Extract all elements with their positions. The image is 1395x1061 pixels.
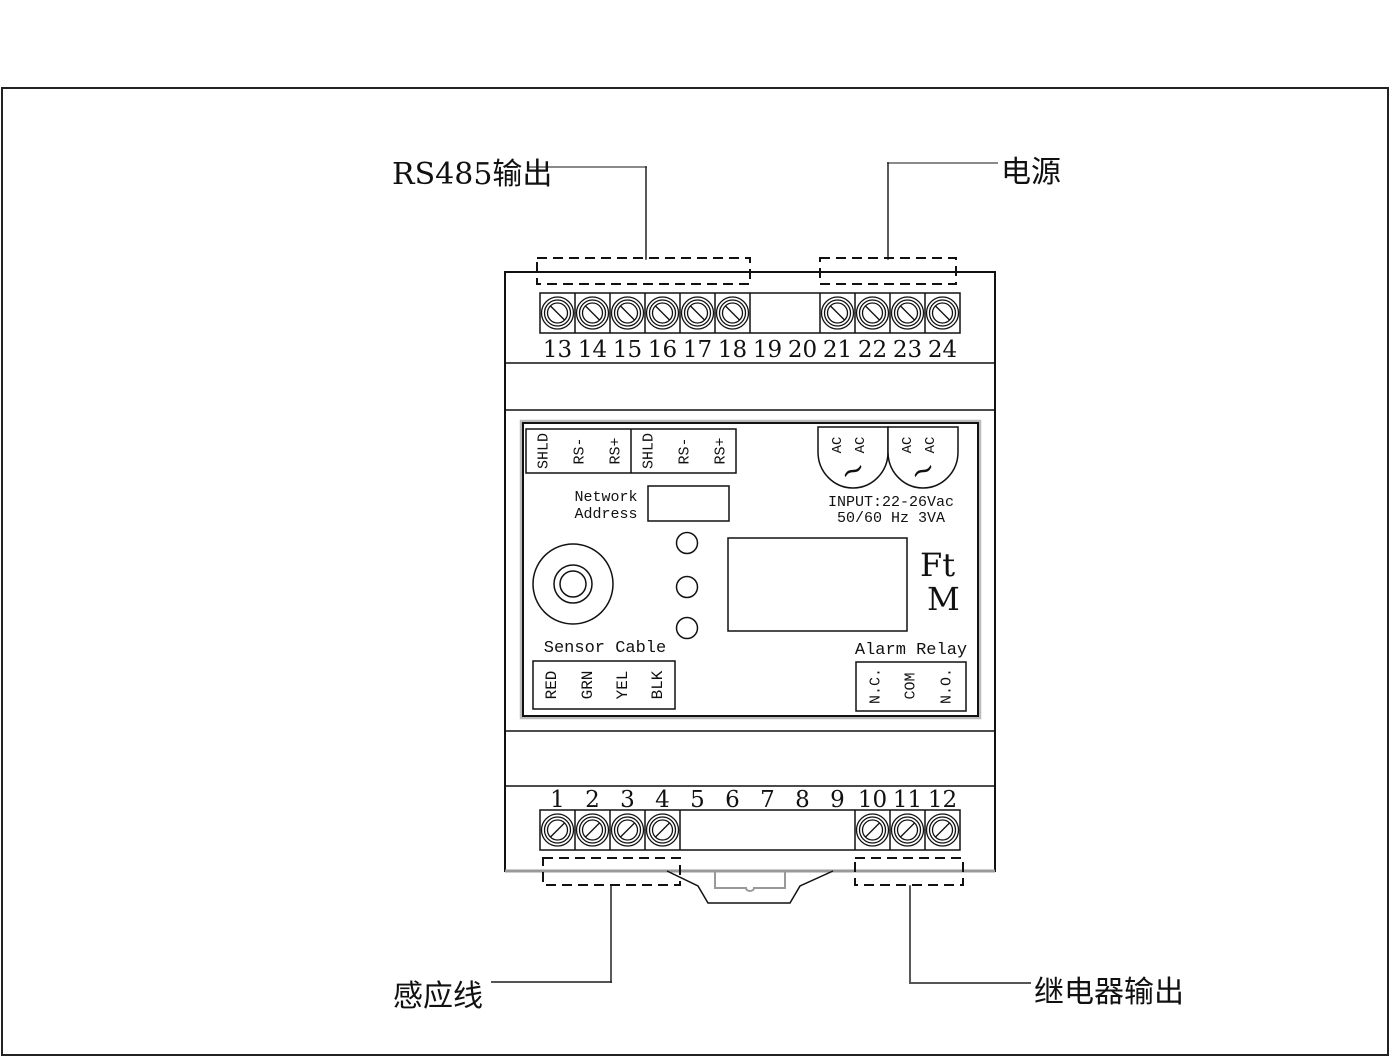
ac-pin-label: AC [900,437,916,454]
terminal-number: 9 [820,787,855,813]
terminal-number: 1 [540,787,575,813]
terminal-number: 8 [785,787,820,813]
din-rail-clip [667,871,833,903]
power-rating-line2: 50/60 Hz 3VA [800,510,982,527]
sensor-cable-title: Sensor Cable [530,639,680,658]
terminal-number: 4 [645,787,680,813]
alarm-relay-title: Alarm Relay [854,641,968,660]
rs485-pin-label: RS+ [608,437,625,464]
terminal-number: 3 [610,787,645,813]
terminal-number: 16 [645,337,680,363]
terminal-number: 14 [575,337,610,363]
sensor-pin-label: BLK [649,671,667,700]
terminal-number: 22 [855,337,890,363]
terminal-number: 12 [925,787,960,813]
wiring-diagram: RS485输出 电源 感应线 继电器输出 13 14 15 16 17 18 1… [0,0,1395,1061]
network-address-caption-line1: Network [556,489,656,506]
rs485-pin-label: RS- [572,437,589,464]
rs485-pin-label: SHLD [641,433,658,469]
rs485-pin-label: SHLD [536,433,553,469]
power-callout: 电源 [1001,147,1061,191]
terminal-number: 17 [680,337,715,363]
relay-output-callout: 继电器输出 [1034,967,1184,1011]
diagram-line-art [0,0,1395,1061]
terminal-number: 15 [610,337,645,363]
terminal-number: 23 [890,337,925,363]
power-rating-line1: INPUT:22-26Vac [800,494,982,511]
terminal-number: 6 [715,787,750,813]
terminal-number: 13 [540,337,575,363]
unit-label-ft: Ft [920,546,955,584]
network-address-caption-line2: Address [556,506,656,523]
terminal-number: 7 [750,787,785,813]
sensor-pin-label: GRN [579,671,597,700]
terminal-number: 5 [680,787,715,813]
terminal-number: 18 [715,337,750,363]
rs485-pin-label: RS+ [713,437,730,464]
terminal-number: 10 [855,787,890,813]
sensor-pin-label: YEL [614,671,632,700]
relay-pin-label: COM [903,672,920,699]
terminal-number: 20 [785,337,820,363]
relay-pin-label: N.O. [939,668,956,704]
terminal-number: 2 [575,787,610,813]
din-rail-notch [715,871,785,891]
rs485-pin-label: RS- [677,437,694,464]
relay-pin-label: N.C. [868,668,885,704]
rs485-output-callout: RS485输出 [392,149,552,193]
unit-label-m: M [927,580,960,618]
sensor-pin-label: RED [543,671,561,700]
terminal-number: 24 [925,337,960,363]
sensor-wire-callout: 感应线 [393,971,483,1015]
terminal-number: 19 [750,337,785,363]
terminal-number: 21 [820,337,855,363]
terminal-number: 11 [890,787,925,813]
ac-pin-label: AC [830,437,846,454]
